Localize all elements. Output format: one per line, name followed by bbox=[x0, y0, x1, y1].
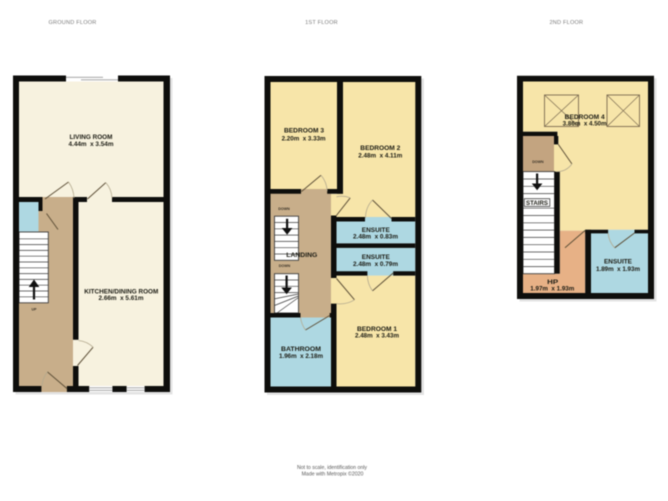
svg-text:2.20m x 3.33m: 2.20m x 3.33m bbox=[282, 136, 326, 142]
svg-text:1ST FLOOR: 1ST FLOOR bbox=[305, 20, 338, 26]
svg-text:1.97m x 1.93m: 1.97m x 1.93m bbox=[530, 287, 574, 293]
svg-text:BEDROOM 3: BEDROOM 3 bbox=[284, 129, 325, 135]
svg-text:BATHROOM: BATHROOM bbox=[281, 347, 321, 353]
svg-text:DOWN: DOWN bbox=[278, 207, 290, 211]
svg-text:1.89m x 1.93m: 1.89m x 1.93m bbox=[596, 267, 640, 273]
svg-text:2.66m x 5.61m: 2.66m x 5.61m bbox=[99, 296, 144, 302]
svg-text:2ND FLOOR: 2ND FLOOR bbox=[549, 20, 583, 26]
svg-text:BEDROOM 2: BEDROOM 2 bbox=[360, 146, 401, 152]
svg-text:LIVING ROOM: LIVING ROOM bbox=[70, 135, 113, 141]
svg-text:ENSUITE: ENSUITE bbox=[362, 255, 390, 261]
svg-text:2.48m x 3.43m: 2.48m x 3.43m bbox=[355, 334, 399, 340]
svg-text:ENSUITE: ENSUITE bbox=[604, 260, 632, 266]
svg-text:2.48m x 0.79m: 2.48m x 0.79m bbox=[353, 262, 398, 268]
svg-text:DOWN: DOWN bbox=[279, 264, 291, 268]
svg-text:BEDROOM 4: BEDROOM 4 bbox=[565, 115, 606, 121]
svg-text:Not to scale, identification o: Not to scale, identification only bbox=[297, 465, 367, 471]
svg-text:GROUND FLOOR: GROUND FLOOR bbox=[48, 20, 96, 26]
svg-text:KITCHEN/DINING ROOM: KITCHEN/DINING ROOM bbox=[84, 289, 158, 295]
svg-text:2.48m x 0.83m: 2.48m x 0.83m bbox=[353, 235, 398, 241]
svg-text:DOWN: DOWN bbox=[532, 160, 544, 164]
svg-text:2.48m x 4.11m: 2.48m x 4.11m bbox=[358, 153, 402, 159]
svg-text:3.86m x 4.50m: 3.86m x 4.50m bbox=[563, 121, 607, 127]
svg-text:Made with Metropix ©2020: Made with Metropix ©2020 bbox=[302, 471, 364, 478]
svg-text:UP: UP bbox=[32, 308, 38, 312]
svg-text:4.44m x 3.54m: 4.44m x 3.54m bbox=[69, 142, 114, 148]
svg-text:ENSUITE: ENSUITE bbox=[362, 228, 390, 234]
svg-text:BEDROOM 1: BEDROOM 1 bbox=[357, 327, 398, 333]
svg-text:STAIRS: STAIRS bbox=[526, 201, 548, 207]
svg-text:LANDING: LANDING bbox=[286, 253, 317, 259]
svg-text:HP: HP bbox=[547, 280, 558, 286]
svg-text:1.96m x 2.18m: 1.96m x 2.18m bbox=[279, 354, 323, 360]
